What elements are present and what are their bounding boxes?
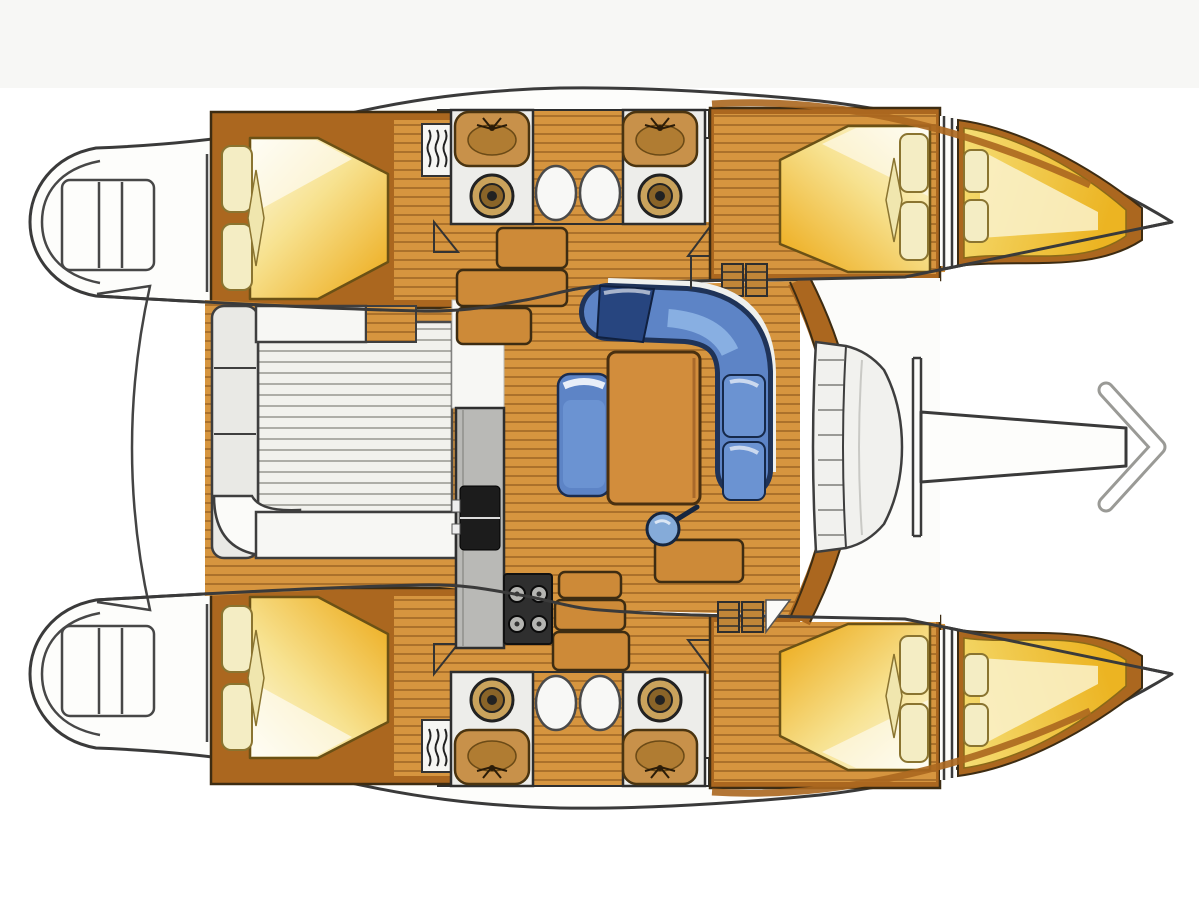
top-margin-band [0,0,1199,88]
cockpit-slatted-floor [258,322,452,512]
cockpit [212,306,456,558]
catamaran-layout-diagram [0,0,1199,900]
starboard-companionway-steps [553,572,629,670]
stove [504,574,552,644]
cockpit-bench-cushion [256,512,456,558]
boat-floor-plan-page [0,0,1199,900]
saloon-seat [558,374,610,496]
saloon-step-bench [655,540,743,582]
saloon-table [608,352,700,504]
cockpit-bench-cushion [256,306,366,342]
